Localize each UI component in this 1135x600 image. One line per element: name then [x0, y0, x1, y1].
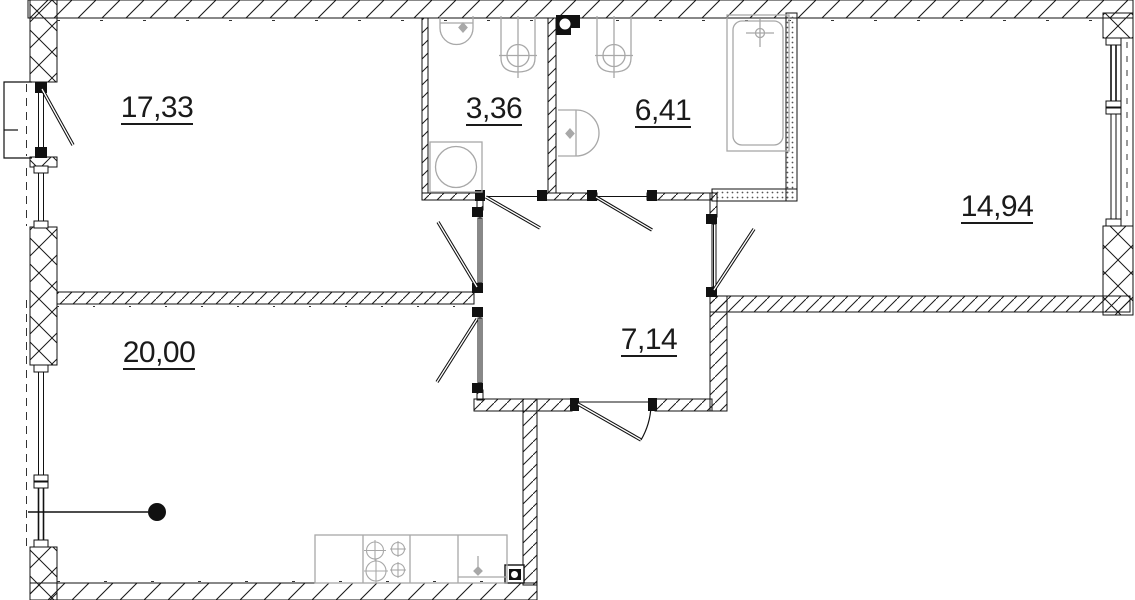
room-label-6-41: 6,41	[635, 94, 691, 127]
room-label-14-94: 14,94	[961, 190, 1034, 223]
room-area-label: 17,33	[121, 91, 194, 124]
wall-room14-bottom	[710, 296, 1130, 312]
wall-bottom	[30, 583, 537, 600]
door-post	[35, 147, 47, 158]
room-area-label: 14,94	[961, 190, 1034, 223]
wall-bath-large-room14	[786, 13, 797, 201]
door-post	[472, 383, 483, 393]
door-post	[587, 190, 597, 201]
wall-hall-southeast-vertical	[710, 296, 727, 411]
door-post	[472, 207, 483, 217]
wall-right-seg1	[1103, 13, 1133, 38]
door-post	[570, 398, 579, 411]
ventilation-shaft-icon	[556, 15, 580, 35]
wall-room17-room20	[57, 292, 474, 304]
door-post	[537, 190, 547, 201]
wall-left-seg3	[30, 227, 57, 365]
wall-room17-bath-small	[422, 18, 428, 193]
room-area-label: 7,14	[621, 323, 677, 356]
door-post	[647, 190, 657, 201]
room-area-label: 6,41	[635, 94, 691, 127]
room-area-label: 20,00	[123, 336, 196, 369]
door-post	[648, 398, 657, 411]
room-label-20-00: 20,00	[123, 336, 196, 369]
wall-bath-small-bath-large	[548, 18, 556, 193]
room-label-3-36: 3,36	[466, 92, 522, 125]
door-post	[706, 214, 717, 224]
room-area-label: 3,36	[466, 92, 522, 125]
room-label-7-14: 7,14	[621, 323, 677, 356]
partition-hall-right-top	[710, 193, 717, 217]
floor-plan: 17,33 3,36 6,41 14,94 7,14 20,00	[0, 0, 1135, 600]
ventilation-shaft-icon	[505, 565, 524, 583]
wall-notch-top	[712, 189, 797, 201]
wall-entry-right	[655, 399, 712, 411]
wall-bath-small-bottom-a	[422, 193, 477, 200]
wall-top	[28, 0, 1133, 18]
door-post	[472, 307, 483, 317]
room-label-17-33: 17,33	[121, 91, 194, 124]
section-dot-marker-icon	[148, 503, 166, 521]
wall-kitchen-right-vertical	[523, 399, 537, 585]
wall-left-seg1	[30, 0, 57, 82]
wall-left-seg4	[30, 547, 57, 600]
